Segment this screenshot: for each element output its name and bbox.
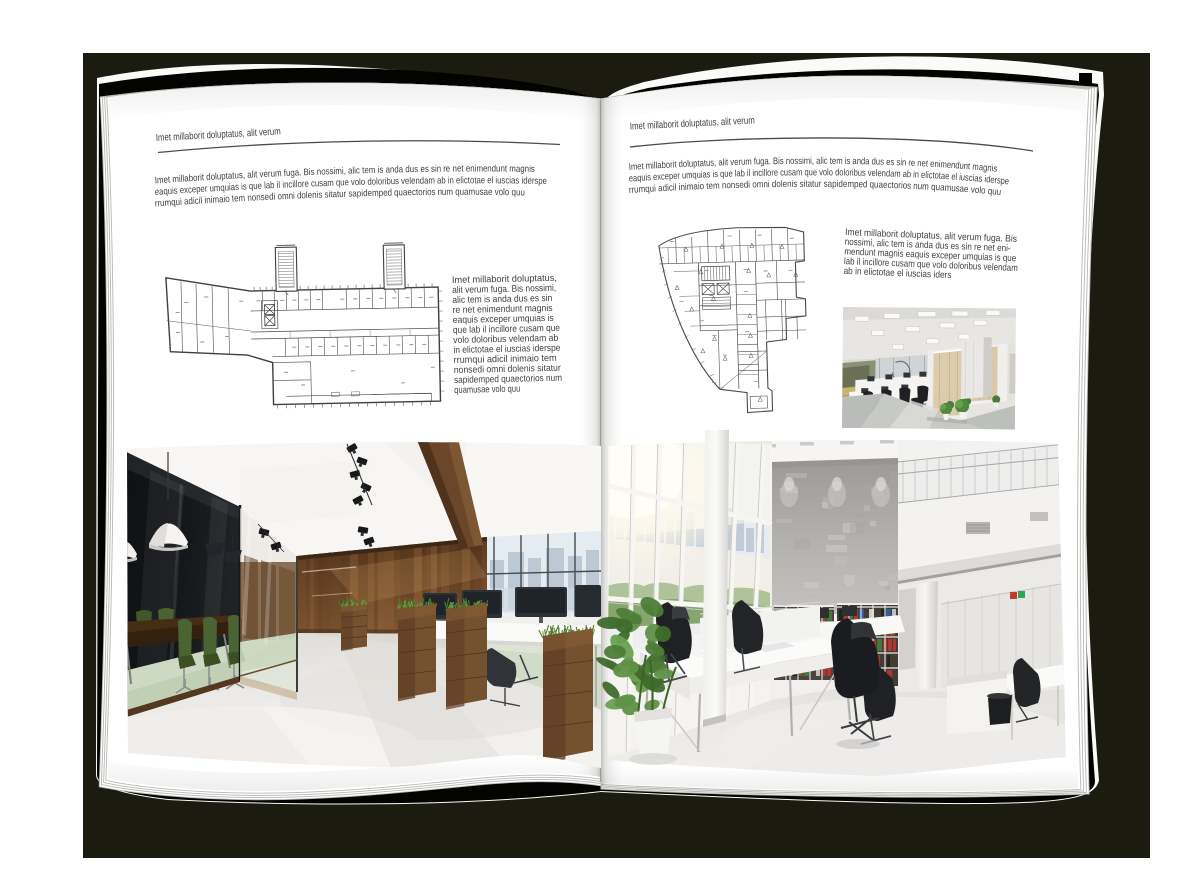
- svg-text:quamusae volo quu: quamusae volo quu: [454, 384, 520, 396]
